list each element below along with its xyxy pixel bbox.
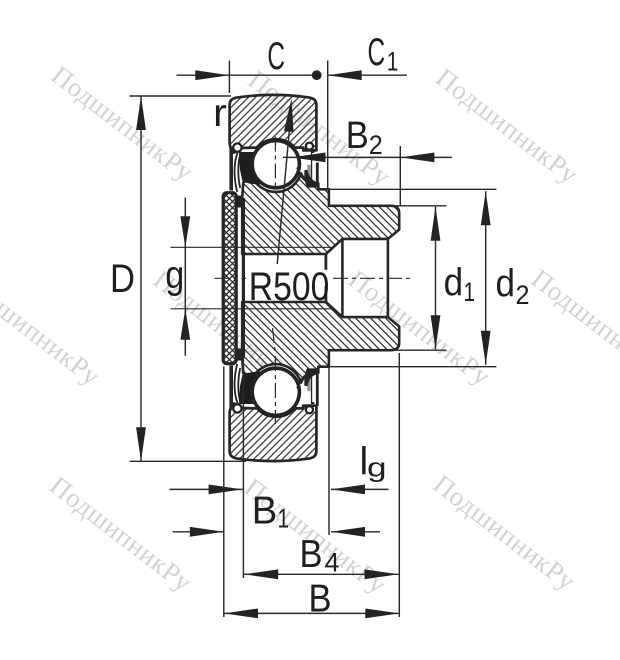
svg-text:1: 1 bbox=[387, 47, 399, 77]
svg-text:B: B bbox=[346, 115, 369, 157]
svg-text:g: g bbox=[165, 254, 184, 297]
svg-text:B: B bbox=[300, 533, 323, 576]
svg-text:1: 1 bbox=[278, 504, 290, 534]
svg-text:B: B bbox=[309, 578, 332, 621]
svg-text:C: C bbox=[267, 35, 285, 78]
svg-text:2: 2 bbox=[369, 130, 383, 160]
svg-text:B: B bbox=[252, 489, 277, 532]
svg-text:d: d bbox=[496, 263, 516, 306]
svg-text:D: D bbox=[110, 257, 135, 301]
svg-text:C: C bbox=[368, 31, 386, 74]
svg-text:g: g bbox=[367, 453, 387, 483]
svg-text:R500: R500 bbox=[249, 265, 329, 309]
svg-text:r: r bbox=[213, 92, 227, 135]
svg-text:d: d bbox=[444, 262, 464, 305]
svg-text:4: 4 bbox=[325, 548, 340, 578]
svg-text:2: 2 bbox=[516, 280, 530, 310]
svg-text:1: 1 bbox=[464, 277, 476, 307]
